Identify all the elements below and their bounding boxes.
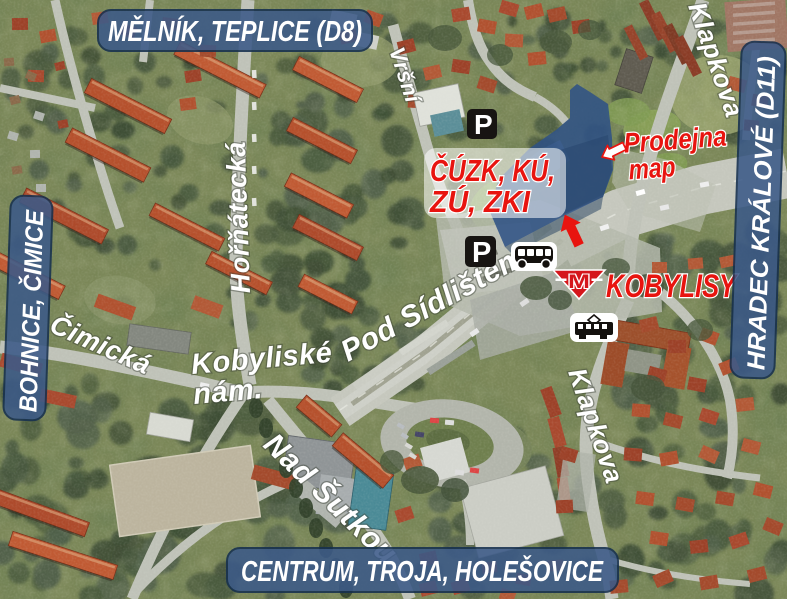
svg-text:P: P — [472, 237, 491, 269]
svg-text:MĚLNÍK, TEPLICE (D8): MĚLNÍK, TEPLICE (D8) — [108, 14, 362, 48]
svg-text:M: M — [568, 272, 590, 293]
svg-text:ČÚZK, KÚ,: ČÚZK, KÚ, — [430, 152, 555, 188]
svg-text:P: P — [474, 109, 493, 140]
svg-text:CENTRUM, TROJA, HOLEŠOVICE: CENTRUM, TROJA, HOLEŠOVICE — [241, 554, 604, 588]
svg-text:Hořňátecká: Hořňátecká — [221, 141, 256, 294]
svg-text:nám.: nám. — [192, 373, 264, 411]
svg-text:map: map — [627, 151, 676, 185]
svg-text:ZÚ, ZKI: ZÚ, ZKI — [429, 184, 531, 219]
svg-text:KOBYLISY: KOBYLISY — [606, 268, 738, 304]
